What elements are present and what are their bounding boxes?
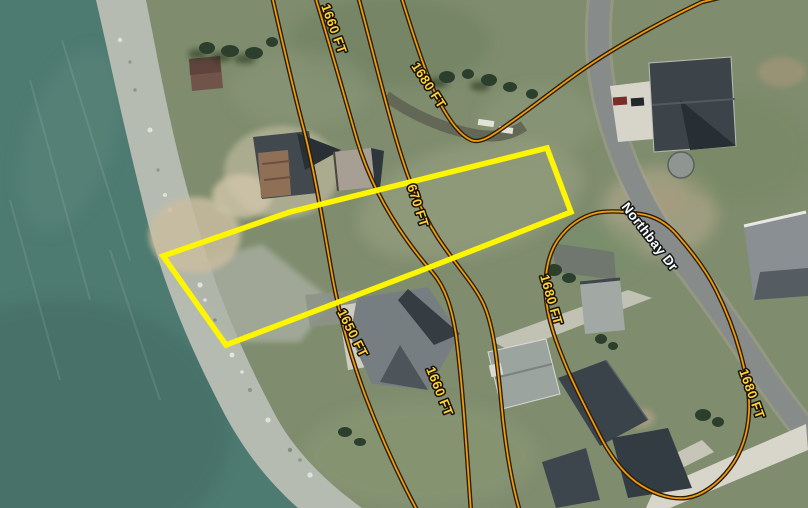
parked-car-dark [631, 98, 645, 107]
right-edge-house [744, 212, 808, 300]
aerial-map-view[interactable]: 1660 FT 1680 FT 670 FT 1650 FT 1660 FT 1… [0, 0, 808, 508]
mid-right-house [580, 279, 625, 334]
map-canvas: 1660 FT 1680 FT 670 FT 1650 FT 1660 FT 1… [0, 0, 808, 508]
round-shed [668, 152, 694, 178]
parked-car-red [613, 97, 628, 106]
